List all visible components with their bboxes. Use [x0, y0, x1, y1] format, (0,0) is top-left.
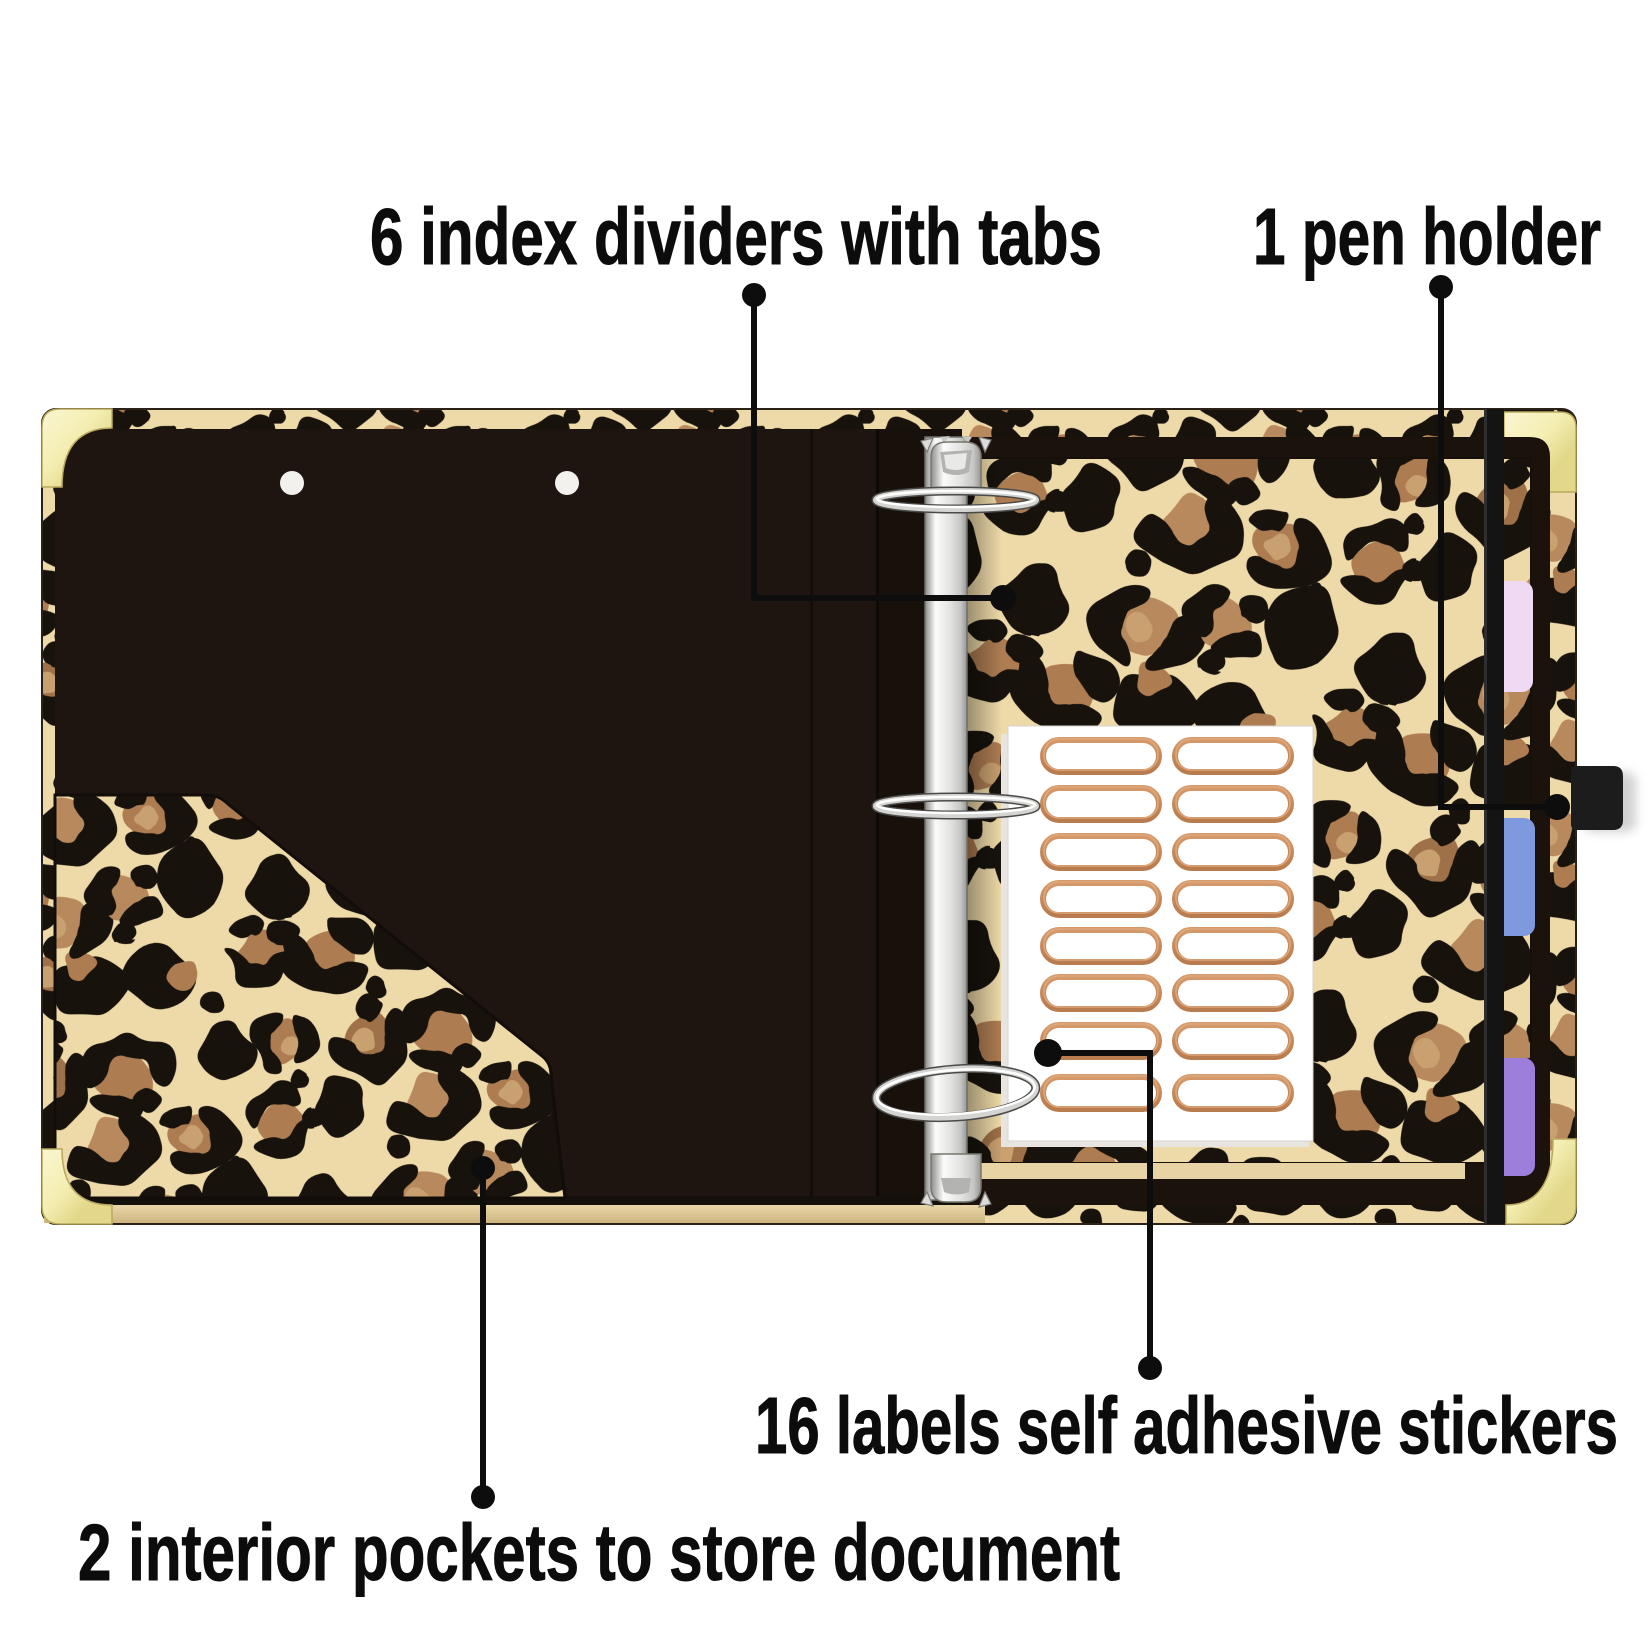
svg-text:2 interior pockets to store do: 2 interior pockets to store document [78, 1508, 1120, 1597]
svg-text:1 pen holder: 1 pen holder [1253, 192, 1601, 281]
svg-text:6 index dividers with tabs: 6 index dividers with tabs [370, 192, 1102, 281]
svg-text:16 labels self adhesive sticke: 16 labels self adhesive stickers [755, 1381, 1618, 1470]
